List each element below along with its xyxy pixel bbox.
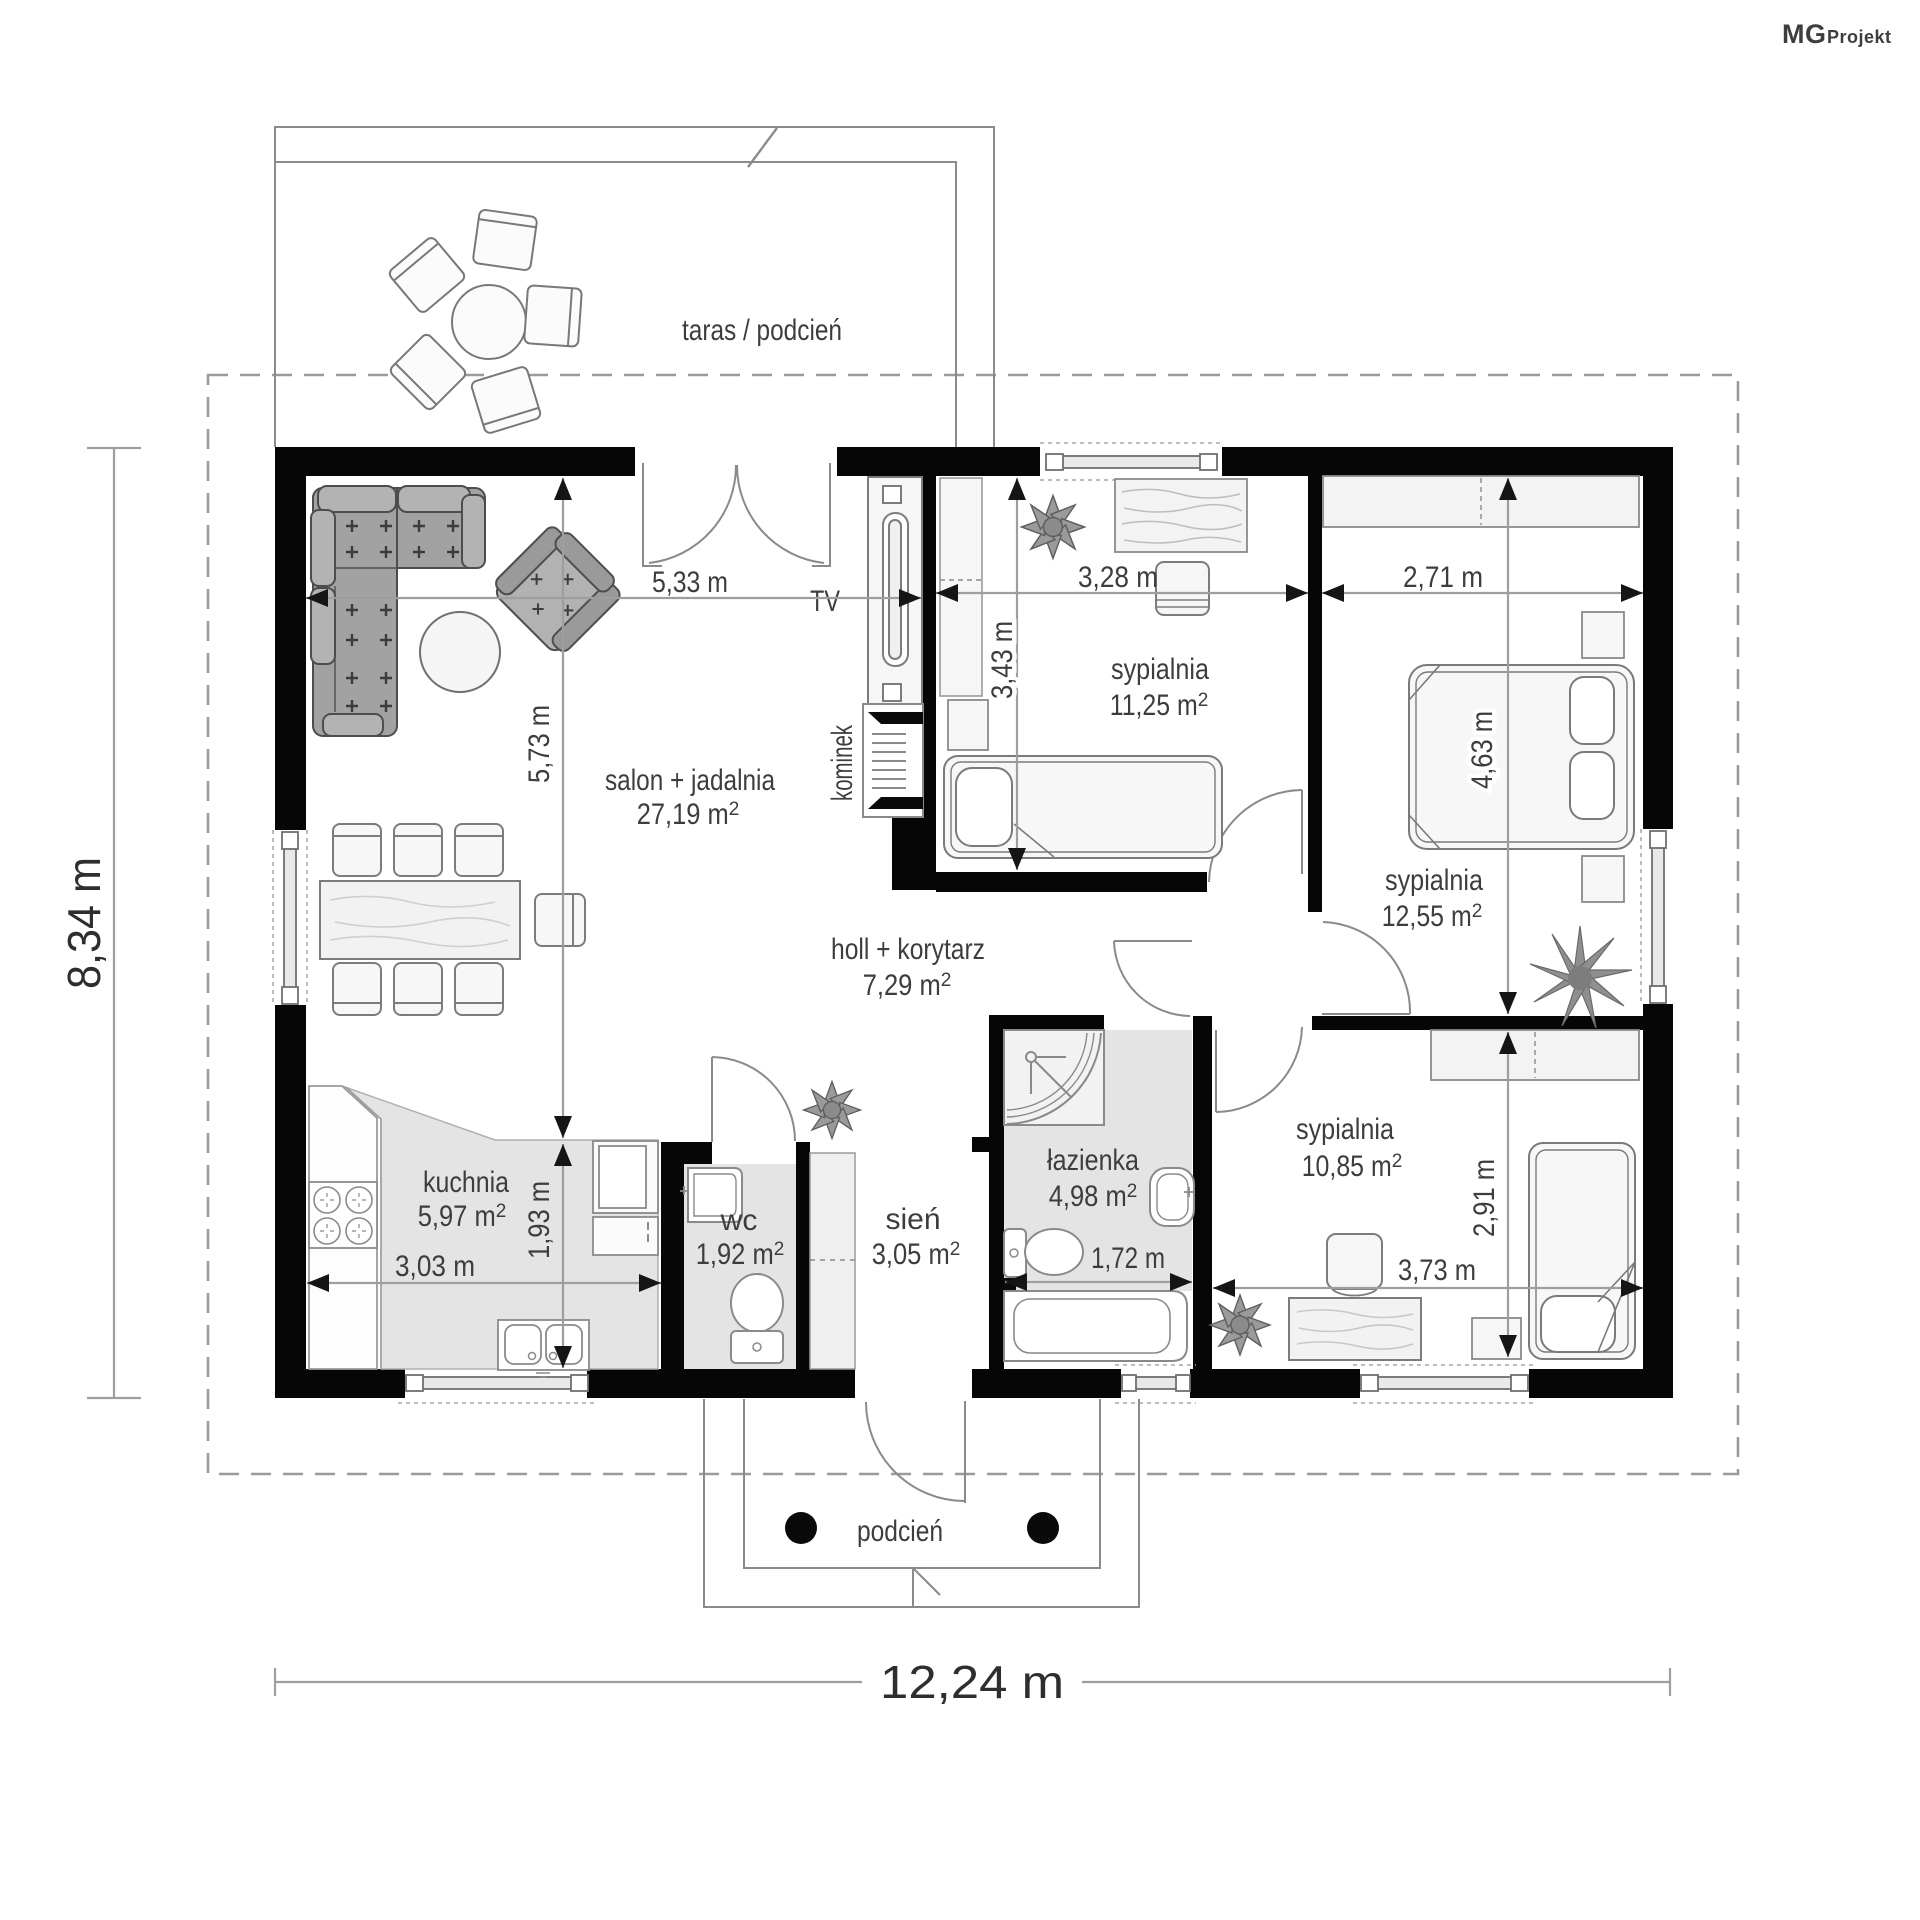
svg-text:wc: wc — [720, 1204, 758, 1237]
svg-text:taras / podcień: taras / podcień — [682, 314, 842, 347]
svg-text:7,29 m2: 7,29 m2 — [863, 969, 952, 1002]
svg-text:1,93 m: 1,93 m — [523, 1181, 556, 1259]
svg-text:sypialnia: sypialnia — [1296, 1113, 1394, 1146]
svg-text:8,34 m: 8,34 m — [58, 857, 110, 989]
svg-text:4,63 m: 4,63 m — [1466, 711, 1499, 789]
svg-text:5,33 m: 5,33 m — [652, 566, 728, 599]
svg-text:kominek: kominek — [826, 724, 859, 801]
svg-text:TV: TV — [810, 585, 840, 618]
svg-text:sypialnia: sypialnia — [1111, 653, 1209, 686]
svg-text:sypialnia: sypialnia — [1385, 864, 1483, 897]
svg-text:holl + korytarz: holl + korytarz — [831, 933, 985, 966]
svg-text:4,98 m2: 4,98 m2 — [1049, 1180, 1138, 1213]
svg-text:salon + jadalnia: salon + jadalnia — [605, 764, 775, 797]
svg-text:3,28 m: 3,28 m — [1078, 561, 1158, 594]
svg-text:3,73 m: 3,73 m — [1398, 1254, 1476, 1287]
svg-text:5,73 m: 5,73 m — [523, 705, 556, 783]
svg-text:3,43 m: 3,43 m — [986, 621, 1019, 699]
svg-text:3,05 m2: 3,05 m2 — [872, 1238, 961, 1271]
svg-text:5,97 m2: 5,97 m2 — [418, 1200, 507, 1233]
svg-text:12,55 m2: 12,55 m2 — [1382, 900, 1483, 933]
svg-text:3,03 m: 3,03 m — [395, 1250, 475, 1283]
svg-text:sień: sień — [885, 1203, 940, 1236]
svg-text:27,19 m2: 27,19 m2 — [637, 798, 740, 831]
svg-text:11,25 m2: 11,25 m2 — [1110, 689, 1209, 722]
svg-text:12,24 m: 12,24 m — [880, 1656, 1064, 1708]
svg-text:łazienka: łazienka — [1047, 1144, 1139, 1177]
svg-text:MG: MG — [1782, 19, 1827, 49]
svg-text:podcień: podcień — [857, 1515, 943, 1548]
svg-text:kuchnia: kuchnia — [423, 1166, 509, 1199]
svg-text:1,72 m: 1,72 m — [1091, 1242, 1165, 1275]
svg-text:2,71 m: 2,71 m — [1403, 561, 1483, 594]
svg-text:1,92 m2: 1,92 m2 — [696, 1238, 785, 1271]
svg-text:Projekt: Projekt — [1827, 27, 1892, 47]
svg-text:10,85 m2: 10,85 m2 — [1302, 1150, 1403, 1183]
svg-text:2,91 m: 2,91 m — [1468, 1159, 1501, 1237]
